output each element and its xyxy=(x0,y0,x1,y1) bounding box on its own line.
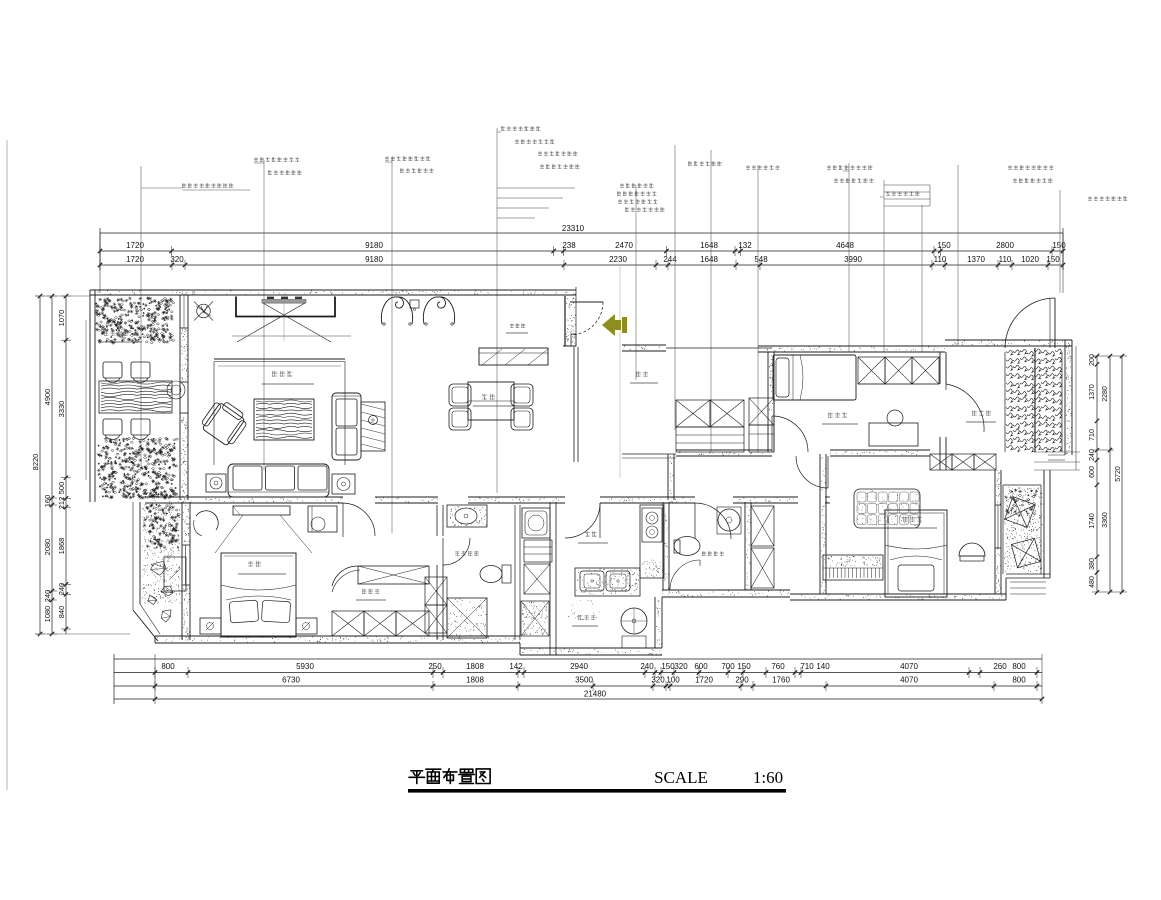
svg-text:240: 240 xyxy=(640,662,654,671)
svg-text:320: 320 xyxy=(651,676,665,685)
svg-text:SCALE: SCALE xyxy=(654,768,708,787)
svg-text:150: 150 xyxy=(737,662,751,671)
svg-text:4648: 4648 xyxy=(836,241,854,250)
svg-text:9180: 9180 xyxy=(365,255,383,264)
svg-text:160: 160 xyxy=(43,495,52,508)
svg-text:1070: 1070 xyxy=(57,310,66,327)
svg-text:150: 150 xyxy=(937,241,951,250)
svg-text:1020: 1020 xyxy=(1021,255,1039,264)
svg-text:100: 100 xyxy=(666,676,680,685)
svg-text:150: 150 xyxy=(1046,255,1060,264)
svg-text:1648: 1648 xyxy=(700,241,718,250)
svg-text:700: 700 xyxy=(721,662,735,671)
svg-text:250: 250 xyxy=(428,662,442,671)
svg-text:2470: 2470 xyxy=(615,241,633,250)
svg-text:3330: 3330 xyxy=(57,401,66,418)
svg-text:142: 142 xyxy=(509,662,523,671)
svg-text:320: 320 xyxy=(170,255,184,264)
svg-text:3360: 3360 xyxy=(1102,512,1109,528)
svg-text:480: 480 xyxy=(1089,576,1096,588)
svg-text:1720: 1720 xyxy=(695,676,713,685)
svg-text:150: 150 xyxy=(661,662,675,671)
svg-text:2940: 2940 xyxy=(570,662,588,671)
svg-text:2800: 2800 xyxy=(996,241,1014,250)
svg-text:260: 260 xyxy=(993,662,1007,671)
svg-text:800: 800 xyxy=(1012,676,1026,685)
svg-text:9180: 9180 xyxy=(365,241,383,250)
svg-text:5720: 5720 xyxy=(1115,466,1122,482)
svg-text:710: 710 xyxy=(800,662,814,671)
svg-text:1868: 1868 xyxy=(57,538,66,555)
svg-text:2080: 2080 xyxy=(43,539,52,556)
svg-text:150: 150 xyxy=(1052,241,1066,250)
svg-text:600: 600 xyxy=(1089,466,1096,478)
svg-text:1720: 1720 xyxy=(126,255,144,264)
svg-text:1808: 1808 xyxy=(466,662,484,671)
svg-text:23310: 23310 xyxy=(562,224,585,233)
svg-text:3500: 3500 xyxy=(575,676,593,685)
svg-text:4070: 4070 xyxy=(900,676,918,685)
svg-text:548: 548 xyxy=(754,255,768,264)
svg-text:760: 760 xyxy=(771,662,785,671)
svg-text:3990: 3990 xyxy=(844,255,862,264)
svg-text:710: 710 xyxy=(1089,429,1096,441)
svg-text:6730: 6730 xyxy=(282,676,300,685)
svg-text:2230: 2230 xyxy=(609,255,627,264)
svg-text:1740: 1740 xyxy=(1089,513,1096,529)
svg-text:1080: 1080 xyxy=(43,606,52,623)
svg-text:1:60: 1:60 xyxy=(753,768,783,787)
svg-text:1720: 1720 xyxy=(126,241,144,250)
svg-text:240: 240 xyxy=(1089,449,1096,461)
svg-text:110: 110 xyxy=(999,255,1012,264)
svg-text:8220: 8220 xyxy=(31,454,40,471)
svg-text:1648: 1648 xyxy=(700,255,718,264)
svg-text:1370: 1370 xyxy=(1089,384,1096,400)
svg-text:5930: 5930 xyxy=(296,662,314,671)
svg-text:380: 380 xyxy=(1089,558,1096,570)
svg-text:500: 500 xyxy=(57,482,66,495)
svg-text:4900: 4900 xyxy=(43,389,52,406)
svg-text:840: 840 xyxy=(57,606,66,619)
svg-text:1370: 1370 xyxy=(967,255,985,264)
svg-text:800: 800 xyxy=(1012,662,1026,671)
svg-text:600: 600 xyxy=(694,662,708,671)
svg-text:800: 800 xyxy=(161,662,175,671)
svg-text:290: 290 xyxy=(735,676,749,685)
svg-text:1808: 1808 xyxy=(466,676,484,685)
svg-text:238: 238 xyxy=(562,241,576,250)
svg-text:4070: 4070 xyxy=(900,662,918,671)
svg-text:2280: 2280 xyxy=(1102,386,1109,402)
svg-text:21480: 21480 xyxy=(584,690,607,699)
svg-text:320: 320 xyxy=(674,662,688,671)
svg-text:140: 140 xyxy=(816,662,830,671)
svg-text:1760: 1760 xyxy=(772,676,790,685)
